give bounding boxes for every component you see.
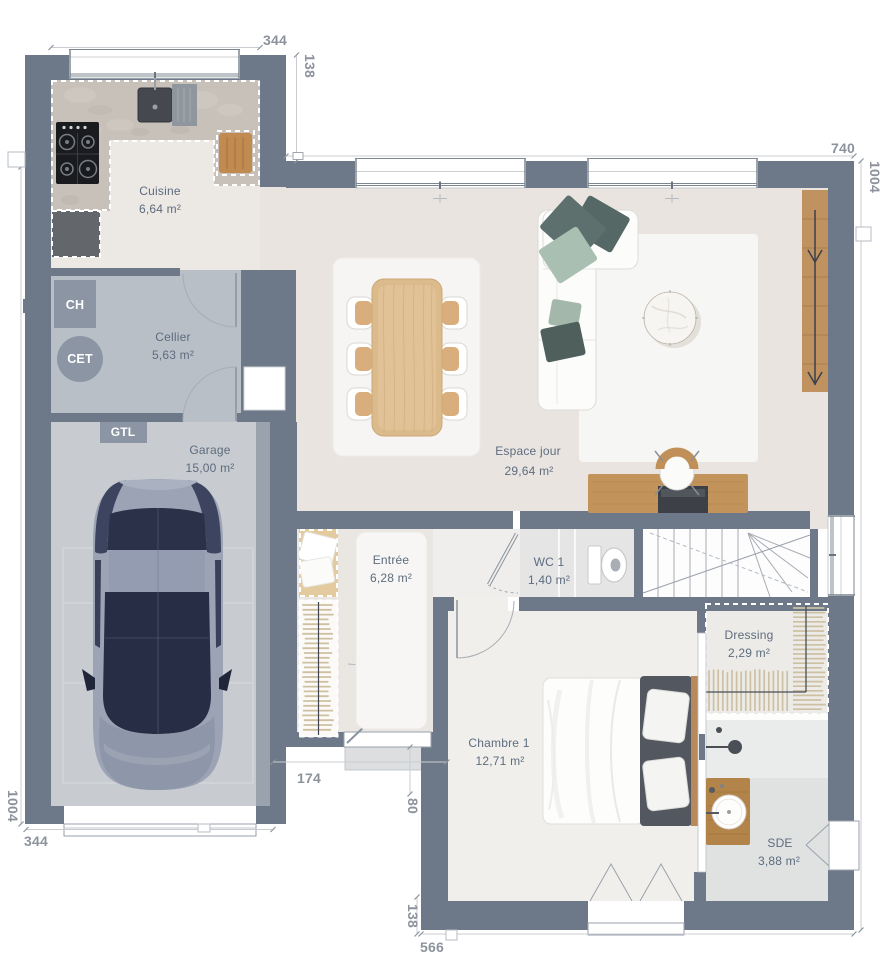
svg-text:Entrée: Entrée: [373, 553, 410, 567]
svg-text:1,40 m²: 1,40 m²: [528, 573, 570, 587]
svg-text:80: 80: [405, 798, 421, 814]
svg-text:Cuisine: Cuisine: [139, 184, 181, 198]
svg-text:566: 566: [420, 939, 444, 955]
svg-text:1004: 1004: [5, 790, 21, 822]
svg-text:Espace jour: Espace jour: [495, 444, 561, 458]
svg-text:CET: CET: [67, 352, 93, 366]
svg-text:Garage: Garage: [189, 443, 230, 457]
svg-text:SDE: SDE: [767, 836, 792, 850]
svg-text:344: 344: [24, 833, 48, 849]
svg-text:344: 344: [263, 32, 287, 48]
svg-text:3,88 m²: 3,88 m²: [758, 854, 800, 868]
svg-text:5,63 m²: 5,63 m²: [152, 348, 194, 362]
svg-text:Cellier: Cellier: [155, 330, 190, 344]
svg-text:WC 1: WC 1: [534, 555, 565, 569]
svg-text:2,29 m²: 2,29 m²: [728, 646, 770, 660]
svg-text:6,64 m²: 6,64 m²: [139, 202, 181, 216]
svg-text:138: 138: [302, 54, 318, 78]
svg-text:29,64 m²: 29,64 m²: [505, 464, 554, 478]
svg-text:1004: 1004: [867, 161, 883, 193]
svg-text:Dressing: Dressing: [725, 628, 774, 642]
svg-text:CH: CH: [66, 298, 84, 312]
svg-text:740: 740: [831, 140, 855, 156]
svg-text:15,00 m²: 15,00 m²: [186, 461, 235, 475]
svg-text:GTL: GTL: [111, 425, 136, 439]
svg-text:174: 174: [297, 770, 321, 786]
svg-text:6,28 m²: 6,28 m²: [370, 571, 412, 585]
svg-text:12,71 m²: 12,71 m²: [476, 754, 525, 768]
svg-text:Chambre 1: Chambre 1: [468, 736, 529, 750]
svg-text:138: 138: [405, 904, 421, 928]
